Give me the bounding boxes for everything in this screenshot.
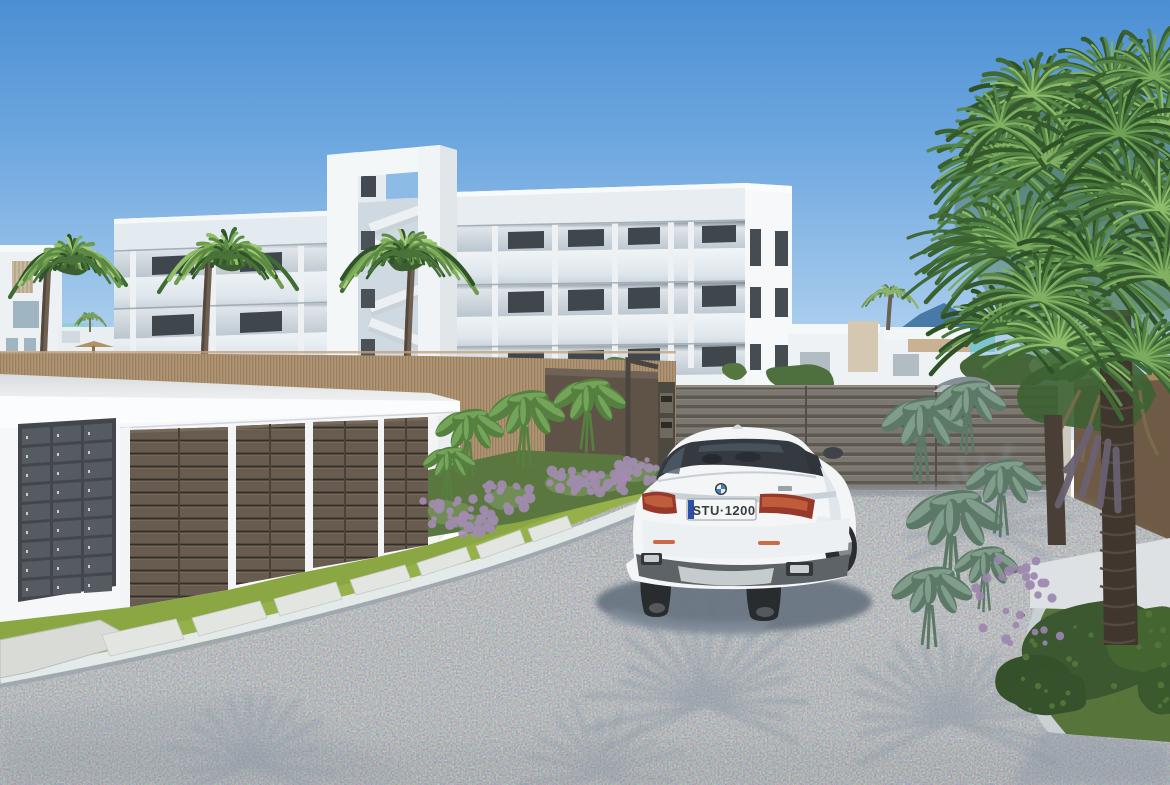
svg-text:STU·1200: STU·1200 [692,503,755,518]
